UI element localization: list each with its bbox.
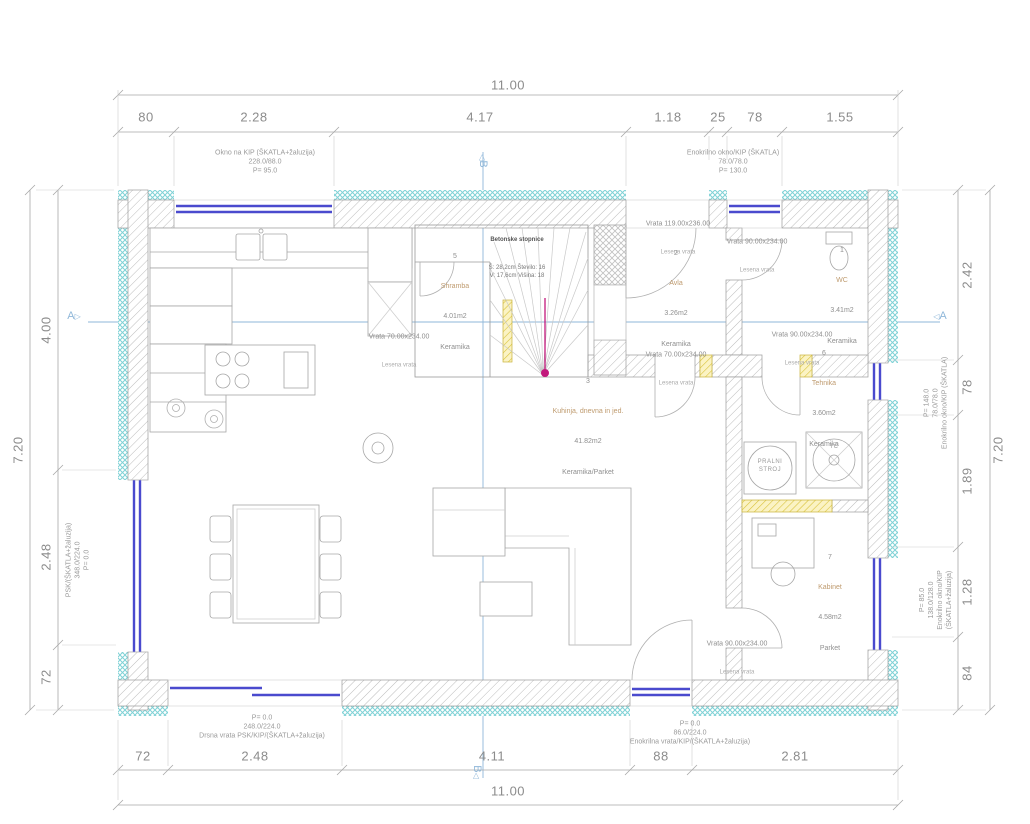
section-marker-a-right: ◁A	[933, 309, 947, 323]
dim-top-seg-7: 1.55	[826, 110, 853, 127]
door-size: Vrata 90.00x234.00	[727, 237, 788, 246]
door-type: Lesena vrata	[646, 380, 707, 388]
section-marker-b-top: ◁B	[476, 154, 490, 168]
dim-right-seg-3: 1.89	[960, 467, 977, 494]
dim-top-overall: 11.00	[491, 78, 525, 95]
door-label-tehnika: Vrata 90.00x234.00 Lesena vrata	[772, 309, 833, 388]
dim-top-seg-6: 78	[747, 110, 762, 127]
note-window-right-upper: P= 148.0 78.0/78.0 Enokrilno okno/KIP (Š…	[922, 357, 949, 449]
door-size: Vrata 70.00x234.00	[369, 332, 430, 341]
stairs-spec: Š: 28,2cm Število: 16 V: 17,6cm Višina: …	[489, 266, 546, 282]
floor-plan-drawing	[0, 0, 1030, 824]
door-type: Lesena vrata	[369, 362, 430, 370]
room-label-kabinet: 7 Kabinet 4.58m2 Parket	[818, 532, 842, 674]
door-type: Lesena vrata	[727, 267, 788, 275]
dim-left-seg-1: 4.00	[39, 316, 56, 343]
note-window-top-left: Okno na KIP (ŠKATLA+žaluzija) 228.0/88.0…	[215, 148, 315, 175]
stairs-title: Betonske stopnice	[489, 237, 546, 245]
room-number: 3	[553, 377, 624, 386]
room-floor: Keramika	[440, 343, 470, 352]
washer-label: PRALNI STROJ	[758, 459, 783, 475]
door-label-kabinet: Vrata 90.00x234.00 Lesena vrata	[707, 618, 768, 697]
dim-bottom-seg-2: 2.48	[241, 749, 268, 766]
door-label-wc: Vrata 90.00x234.00 Lesena vrata	[727, 216, 788, 295]
dining-set	[210, 505, 341, 623]
stove	[363, 433, 393, 463]
room-name: Kabinet	[818, 583, 842, 592]
dim-bottom-overall: 11.00	[491, 784, 525, 801]
room-floor: Keramika/Parket	[553, 468, 624, 477]
door-type: Lesena vrata	[646, 249, 710, 257]
dim-bottom-seg-5: 2.81	[781, 749, 808, 766]
door-label-entrance: Vrata 119.00x236.00 Lesena vrata	[646, 198, 710, 277]
dim-left-seg-3: 72	[39, 669, 56, 684]
note-door-bottom-right: P= 0.0 86.0/224.0 Enokrilna vrata/KIP/(Š…	[630, 719, 750, 746]
dim-bottom-seg-3: 4.11	[479, 749, 505, 766]
door-type: Lesena vrata	[772, 360, 833, 368]
room-number: 7	[818, 553, 842, 562]
door-size: Vrata 119.00x236.00	[646, 219, 710, 228]
dim-right-overall: 7.20	[991, 436, 1008, 463]
dim-top-seg-3: 4.17	[466, 110, 493, 127]
dim-bottom-seg-1: 72	[135, 749, 150, 766]
note-door-bottom-left: P= 0.0 248.0/224.0 Drsna vrata PSK/KIP/(…	[199, 713, 325, 740]
note-window-left: PSK/(ŠKATLA+žaluzija) 348.0/224.0 P= 0.0	[64, 523, 91, 597]
room-name: Avla	[661, 279, 691, 288]
door-type: Lesena vrata	[707, 669, 768, 677]
dim-top-seg-4: 1.18	[654, 110, 681, 127]
room-area: 4.58m2	[818, 613, 842, 622]
sofa-set	[433, 488, 631, 645]
dim-left-overall: 7.20	[11, 436, 28, 463]
room-number: 5	[440, 252, 470, 261]
room-label-kuhinja: 3 Kuhinja, dnevna in jed. 41.82m2 Kerami…	[553, 356, 624, 498]
dim-right-seg-5: 84	[960, 665, 977, 680]
section-letter: A	[939, 310, 946, 322]
room-label-shramba: 5 Shramba 4.01m2 Keramika	[440, 231, 470, 373]
dim-top-seg-5: 25	[710, 110, 725, 127]
concrete-pier	[594, 225, 626, 285]
room-name: Shramba	[440, 282, 470, 291]
dim-right-seg-2: 78	[960, 379, 977, 394]
section-marker-b-bottom: B◁	[470, 765, 484, 779]
room-area: 41.82m2	[553, 437, 624, 446]
section-marker-a-left: A▷	[67, 309, 81, 323]
shaft-outline	[594, 285, 626, 340]
dim-left-seg-2: 2.48	[39, 543, 56, 570]
dim-top-seg-1: 80	[138, 110, 153, 127]
dim-right-seg-1: 2.42	[960, 261, 977, 288]
room-name: Kuhinja, dnevna in jed.	[553, 407, 624, 416]
door-size: Vrata 90.00x234.00	[707, 639, 768, 648]
section-arrow-icon: ◁	[472, 773, 481, 779]
note-window-top-right: Enokrilno okno/KIP (ŠKATLA) 78.0/78.0 P=…	[687, 148, 779, 175]
door-label-hall: Vrata 70.00x234.00 Lesena vrata	[646, 329, 707, 408]
room-floor: Parket	[818, 644, 842, 653]
room-name: WC	[827, 276, 857, 285]
door-label-shramba: Vrata 70.00x234.00 Lesena vrata	[369, 311, 430, 390]
dim-top-seg-2: 2.28	[240, 110, 267, 127]
dim-right-seg-4: 1.28	[960, 578, 977, 605]
section-letter: B	[477, 160, 489, 167]
stairs-note: Betonske stopnice Š: 28,2cm Število: 16 …	[489, 216, 546, 302]
room-number: 1	[827, 246, 857, 255]
section-arrow-icon: ▷	[75, 312, 81, 321]
heat-pump-label: TČ	[830, 444, 839, 452]
floor-plan-sheet: 11.00 80 2.28 4.17 1.18 25 78 1.55 72 2.…	[0, 0, 1030, 824]
room-area: 4.01m2	[440, 312, 470, 321]
dim-bottom-seg-4: 88	[653, 749, 668, 766]
room-area: 3.60m2	[809, 409, 839, 418]
door-size: Vrata 70.00x234.00	[646, 350, 707, 359]
note-window-right-lower: P= 85.0 138.0/128.0 Enokrilno okno/KIP (…	[918, 553, 954, 647]
kabinet-furniture	[752, 518, 814, 586]
room-area: 3.26m2	[661, 309, 691, 318]
door-size: Vrata 90.00x234.00	[772, 330, 833, 339]
